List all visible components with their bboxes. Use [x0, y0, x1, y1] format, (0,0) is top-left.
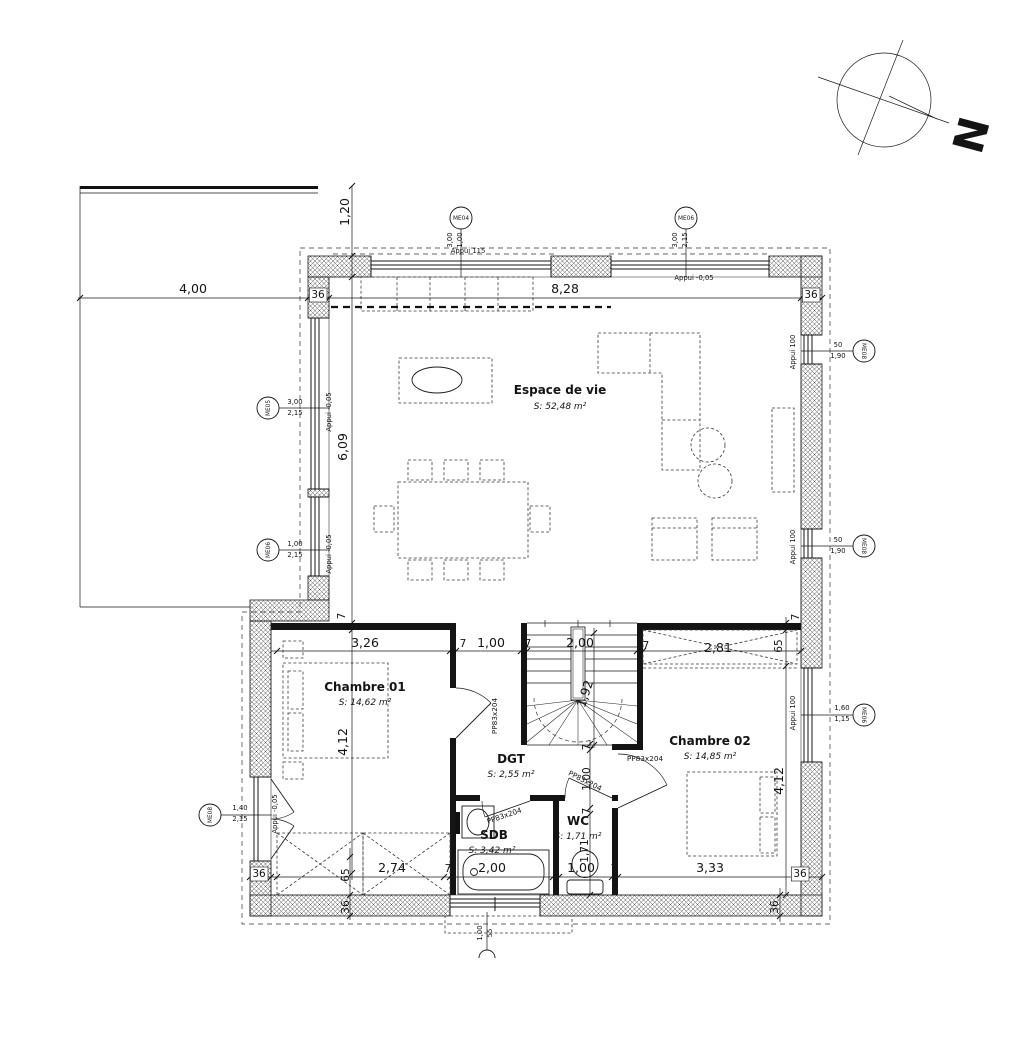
room-area-sdb: S: 3,42 m² [469, 846, 516, 856]
window-dim: 1,60 [834, 704, 849, 712]
window-tag-me06: ME06 [853, 704, 875, 726]
dim-7: 7 [581, 744, 593, 751]
window-tag-label: ME04 [453, 216, 469, 222]
entry-dim: 55 [486, 929, 494, 938]
window-tag-label: ME06 [266, 542, 272, 558]
kitchen-island [399, 358, 492, 403]
room-name-sdb: SDB [480, 828, 508, 842]
armchair [652, 518, 697, 560]
window-dim: 2,15 [287, 551, 302, 559]
dim-1-20: 1,20 [337, 198, 352, 226]
dim-7: 7 [581, 808, 593, 815]
entry-swing [479, 950, 495, 958]
dim-sdb-width: 2,00 [478, 860, 506, 875]
room-name-dgt: DGT [497, 752, 526, 766]
sofa [598, 333, 700, 470]
window-tag-label: ME05 [266, 400, 272, 416]
dim-stairs-width: 2,00 [566, 635, 594, 650]
dim-living-depth: 6,09 [335, 433, 350, 461]
window-dim: 3,00 [287, 398, 302, 406]
dim-chambre02-width: 3,33 [696, 860, 724, 875]
dim-7: 7 [336, 613, 348, 620]
door-label-chambre01: PP83x204 [490, 697, 499, 734]
dim-7: 7 [790, 614, 802, 621]
sink [412, 367, 462, 393]
window-tag-label: ME06 [678, 216, 694, 222]
door-leaf-chambre01 [456, 703, 491, 738]
exterior-walls [250, 256, 822, 916]
window-dim: 1,90 [830, 547, 845, 555]
dim-chambre02-depth: 4,12 [771, 767, 786, 795]
dim-7: 7 [525, 638, 532, 650]
side-table [772, 408, 794, 492]
sill-label: Appui 100 [789, 530, 797, 565]
dim-chambre01-depth: 4,12 [335, 728, 350, 756]
floor-plan-drawing: ME04ME06ME05ME06ME08ME08ME08ME06 4,00368… [0, 0, 1035, 1056]
window-tag-me08: ME08 [199, 804, 221, 826]
sill-label: Appui -0,05 [325, 534, 333, 573]
dim-3-26: 3,26 [351, 635, 379, 650]
armchair [712, 518, 757, 560]
sill-label: Appui 100 [789, 335, 797, 370]
room-name-espace-de-vie: Espace de vie [514, 383, 606, 397]
door-label-sdb: PP83x204 [486, 805, 524, 825]
room-name-wc: WC [567, 814, 589, 828]
window-dim: 1,00 [287, 540, 302, 548]
window-dim: 1,40 [232, 804, 247, 812]
window-dim: 2,15 [287, 409, 302, 417]
dim-terrace-width: 4,00 [179, 281, 207, 296]
pouf [698, 464, 732, 498]
dim-closet-width: 2,81 [704, 640, 732, 655]
dim-7: 7 [460, 638, 467, 650]
dim-2-74: 2,74 [378, 860, 406, 875]
window-tag-me08: ME08 [853, 340, 875, 362]
furniture [277, 277, 797, 933]
dim-living-width: 8,28 [551, 281, 579, 296]
room-area-chambre-02: S: 14,85 m² [684, 752, 737, 762]
radiator [456, 812, 460, 834]
entry-dim: 1,00 [476, 925, 484, 940]
sill-label: Appui -0,05 [325, 392, 333, 431]
dim-65: 65 [773, 639, 785, 652]
door-leaf-chambre02 [618, 785, 667, 808]
sill-label: Appui 115 [451, 247, 486, 255]
dim-wall-36: 36 [340, 900, 352, 914]
north-letter: N [942, 111, 998, 158]
kitchen-counter [361, 277, 533, 311]
room-area-chambre-01: S: 14,62 m² [339, 698, 392, 708]
terrace [80, 186, 318, 607]
room-area-dgt: S: 2,55 m² [488, 770, 535, 780]
room-name-chambre-02: Chambre 02 [669, 734, 750, 748]
window-dim: 1,15 [834, 715, 849, 723]
window-tags: ME04ME06ME05ME06ME08ME08ME08ME06 [199, 207, 875, 826]
window-dim: 1,00 [456, 232, 464, 247]
dim-7: 7 [611, 863, 618, 875]
window-tag-me08: ME08 [853, 535, 875, 557]
wall-faces [271, 277, 801, 895]
window-tag-label: ME08 [860, 538, 866, 554]
dim-wall-36: 36 [252, 868, 266, 880]
window-tag-me04: ME04 [450, 207, 472, 229]
sill-label: Appui 100 [789, 696, 797, 731]
window-dim: 50 [834, 536, 843, 544]
dim-wall-36: 36 [769, 900, 781, 914]
sill-label: Appui -0,05 [674, 274, 713, 282]
window-dim: 1,90 [830, 352, 845, 360]
door-label-chambre02: PP83x204 [627, 754, 664, 763]
room-area-espace-de-vie: S: 52,48 m² [534, 402, 587, 412]
dim-wall-36: 36 [311, 289, 325, 301]
dim-7: 7 [643, 640, 650, 652]
window-tag-me05: ME05 [257, 397, 279, 419]
dim-7: 7 [553, 863, 560, 875]
dim-wc-width: 1,00 [567, 860, 595, 875]
dining-table [398, 482, 528, 558]
windows [250, 254, 822, 916]
roof-overhang-line [242, 248, 830, 924]
annotations: 4,00368,28361,206,094,123,001,00Appui 11… [179, 111, 998, 940]
entry-landing [445, 916, 572, 933]
dim-1-00: 1,00 [477, 635, 505, 650]
window-dim: 2,15 [681, 232, 689, 247]
dim-7: 7 [445, 863, 452, 875]
dim-65: 65 [340, 868, 352, 881]
window-dim: 3,00 [671, 232, 679, 247]
window-dim: 50 [834, 341, 843, 349]
window-tag-label: ME06 [860, 707, 866, 723]
window-dim: 2,15 [232, 815, 247, 823]
window-tag-me06: ME06 [257, 539, 279, 561]
room-name-chambre-01: Chambre 01 [324, 680, 405, 694]
window-tag-label: ME08 [208, 807, 214, 823]
bed-chambre02 [687, 772, 777, 856]
floor-plan-page: ME04ME06ME05ME06ME08ME08ME08ME06 4,00368… [0, 0, 1035, 1056]
dim-wall-36: 36 [793, 868, 807, 880]
sill-label: Appui -0,05 [271, 794, 279, 833]
north-compass-icon [818, 40, 949, 155]
window-tag-me06: ME06 [675, 207, 697, 229]
window-dim: 3,00 [446, 232, 454, 247]
pouf [691, 428, 725, 462]
dim-wall-36: 36 [804, 289, 818, 301]
window-tag-label: ME08 [860, 343, 866, 359]
